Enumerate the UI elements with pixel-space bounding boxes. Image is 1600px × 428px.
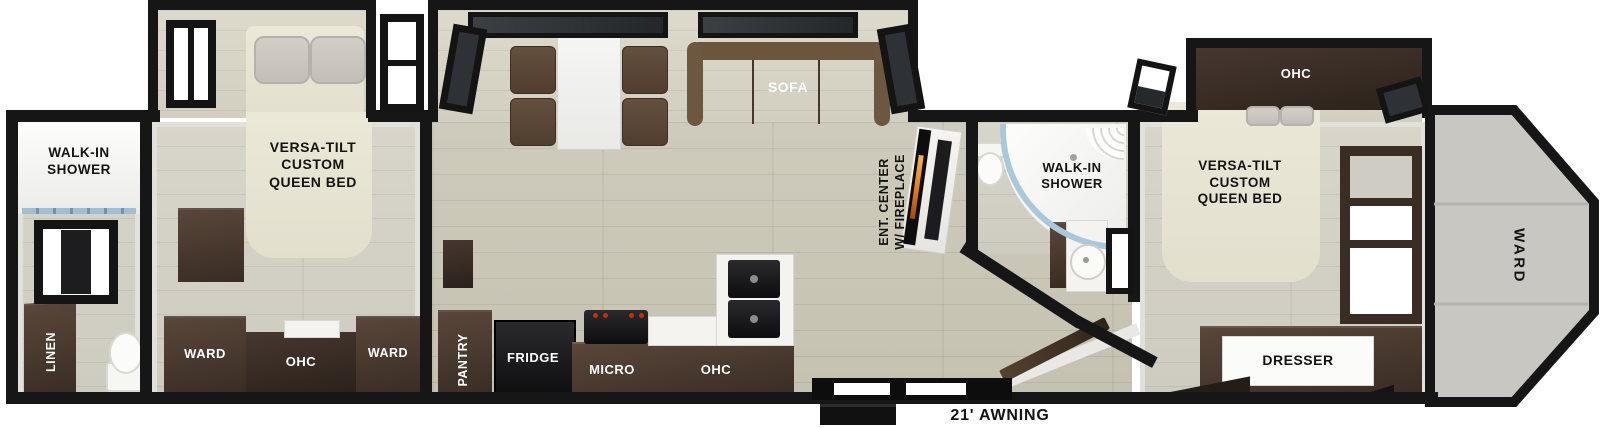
ward-left-label: WARD	[164, 344, 246, 364]
micro-label: MICRO	[567, 360, 657, 380]
living-slide-wall	[428, 0, 438, 118]
dinette-chair-1	[510, 46, 556, 94]
mid-toilet-bowl	[976, 152, 1004, 186]
window-mullion	[1350, 198, 1412, 206]
bed-slide-wall	[366, 0, 376, 118]
window-pane-middle	[1350, 206, 1412, 240]
bedroom-living-window	[380, 14, 424, 112]
sofa-label: SOFA	[690, 78, 886, 98]
bath-wall	[966, 118, 978, 252]
sofa-back	[691, 42, 886, 60]
ent-center-tv	[924, 139, 952, 240]
living-slide-wall	[428, 0, 918, 10]
island-drawer-top	[728, 260, 780, 298]
mid-shower-label: WALK-IN SHOWER	[1016, 154, 1128, 198]
dinette-chair-3	[622, 46, 668, 94]
island-drawer-bottom	[728, 300, 780, 338]
exterior-wall	[6, 110, 160, 122]
sink-faucet	[1083, 257, 1089, 263]
rear-bedroom-desk	[178, 208, 244, 282]
front-slide-wall	[1186, 38, 1196, 118]
front-bed-pillow-right	[1280, 106, 1314, 126]
drawer-knob	[750, 275, 758, 283]
rear-bed-pillow-left	[254, 36, 310, 84]
ward-right-label: WARD	[354, 344, 422, 364]
awning-label: 21' AWNING	[900, 406, 1100, 426]
stove-burner-1	[593, 313, 598, 318]
living-slide-top-window-left	[468, 12, 668, 38]
linen-label: LINEN	[43, 312, 61, 392]
entry-step-tread	[906, 383, 966, 395]
window-pane-top	[1350, 156, 1412, 198]
fridge-label: FRIDGE	[494, 348, 572, 368]
bath-mirror-window	[1106, 228, 1134, 294]
rear-bed-pillow-right	[310, 36, 366, 84]
stove-burner-2	[603, 313, 608, 318]
entry-step-tread	[834, 383, 890, 395]
exterior-entry-step	[820, 404, 896, 425]
front-ohc-label: OHC	[1196, 64, 1396, 84]
dinette-chair-2	[510, 98, 556, 146]
front-cap: WARD	[1424, 100, 1600, 412]
rear-window	[34, 220, 118, 304]
living-slide-top-window-right	[698, 12, 858, 38]
front-bed-pillow-left	[1246, 106, 1280, 126]
pantry-label: PANTRY	[455, 316, 473, 404]
dinette-chair-4	[622, 98, 668, 146]
entry-steps	[812, 378, 1012, 400]
rv-floorplan: WALK-IN SHOWER LINEN VERSA-TILT CUSTOM Q…	[0, 0, 1600, 428]
drawer-knob	[750, 315, 758, 323]
kitchen-ohc-label: OHC	[672, 360, 760, 380]
interior-wall	[140, 110, 152, 404]
stove-burner-3	[629, 313, 634, 318]
window-mullion	[1350, 240, 1412, 248]
bed-slide-left-window	[166, 20, 216, 108]
rear-ohc-label: OHC	[246, 352, 356, 372]
window-mullion	[188, 28, 194, 100]
ent-center-label: ENT. CENTER W/ FIREPLACE	[873, 127, 913, 277]
exterior-wall-bottom	[6, 392, 1438, 404]
bed-slide-wall	[148, 0, 376, 10]
rear-ohc-tv	[284, 320, 340, 338]
rear-shower-label: WALK-IN SHOWER	[20, 140, 138, 184]
window-pane-dark	[1134, 86, 1165, 109]
rear-toilet-bowl	[109, 332, 143, 374]
dresser-label: DRESSER	[1224, 350, 1372, 372]
bed-slide-wall	[148, 0, 158, 118]
window-pane-bottom	[1350, 248, 1412, 314]
dinette-table	[557, 26, 621, 150]
living-side-cabinet	[443, 240, 473, 288]
stove-burner-4	[639, 313, 644, 318]
rear-shower-glass	[22, 208, 136, 214]
front-slide-wall	[1186, 38, 1432, 48]
exterior-wall	[6, 110, 18, 404]
front-bedroom-large-window	[1340, 146, 1422, 324]
front-bed-label: VERSA-TILT CUSTOM QUEEN BED	[1164, 152, 1316, 214]
window-mullion	[388, 60, 416, 66]
rear-window-dark-panel	[61, 230, 91, 294]
front-cap-ward-label: WARD	[1511, 228, 1528, 284]
rear-bed-label: VERSA-TILT CUSTOM QUEEN BED	[238, 134, 388, 196]
